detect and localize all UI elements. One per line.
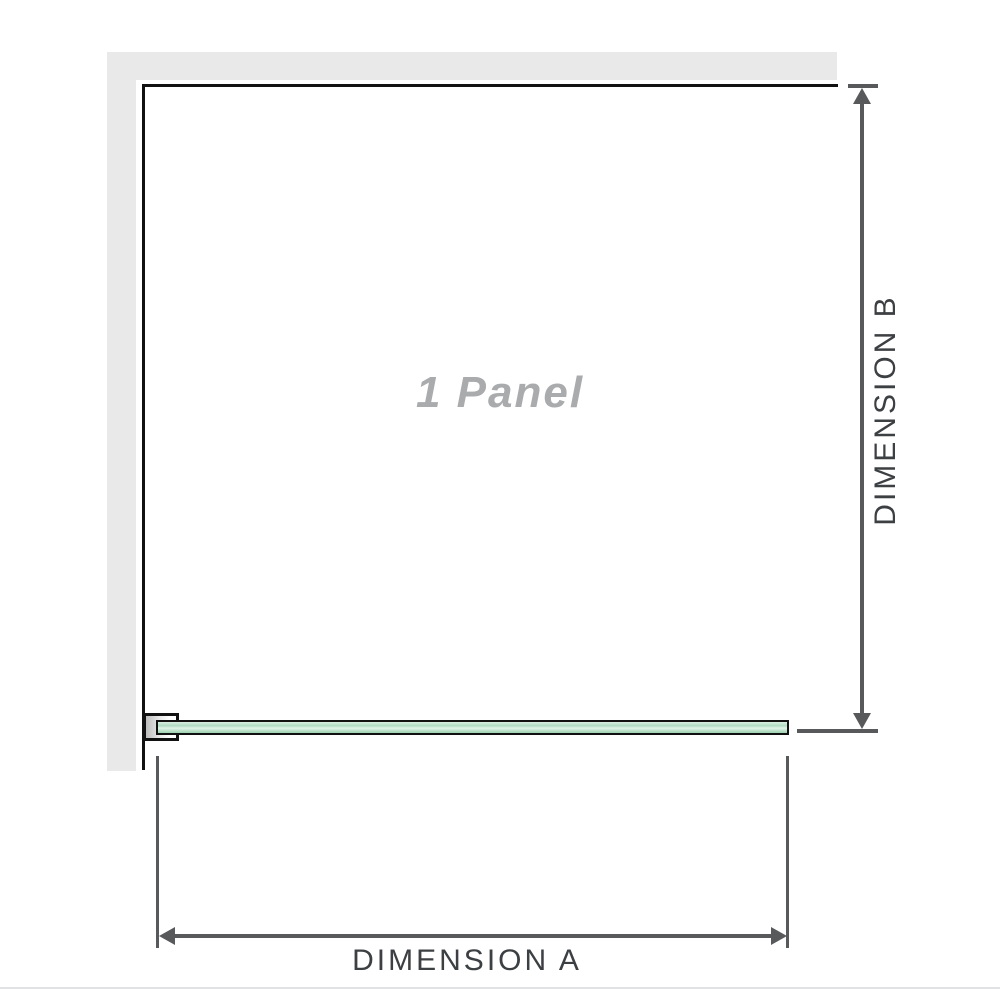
dimension-a-right-extension (786, 756, 789, 948)
dimension-a-left-extension (156, 756, 159, 948)
arrow-right-icon (771, 927, 787, 945)
panel-count-label: 1 Panel (300, 368, 700, 418)
bottom-divider (0, 987, 1000, 989)
dimension-b-bottom-tick (797, 729, 878, 733)
dimension-a-line (166, 934, 779, 938)
wall-top-bar (107, 52, 837, 80)
product-dimension-diagram: 1 Panel DIMENSION B DIMENSION A (0, 0, 1000, 1000)
arrow-down-icon (853, 713, 871, 729)
dimension-b-line (860, 95, 864, 719)
glass-panel-bar (156, 720, 789, 735)
dimension-a-label: DIMENSION A (352, 944, 582, 977)
panel-outline (142, 84, 838, 770)
arrow-left-icon (159, 927, 175, 945)
dimension-b-label: DIMENSION B (869, 294, 902, 525)
wall-side-bar (107, 52, 136, 771)
arrow-up-icon (853, 88, 871, 104)
